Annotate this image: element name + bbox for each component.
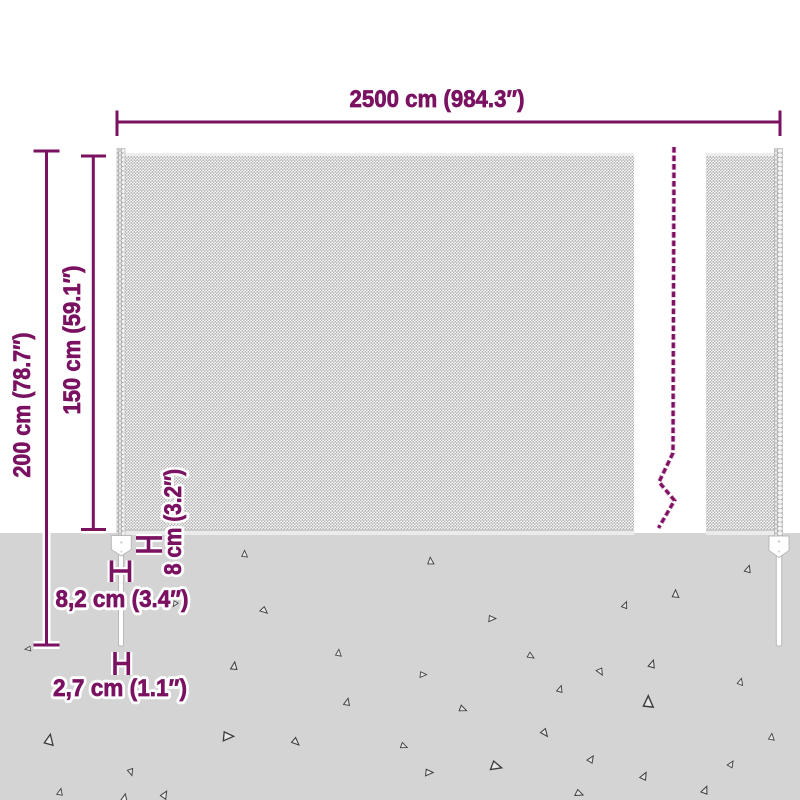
svg-text:8 cm (3.2″): 8 cm (3.2″): [160, 469, 187, 575]
svg-text:150 cm (59.1″): 150 cm (59.1″): [59, 266, 86, 415]
svg-text:2,7 cm (1.1″): 2,7 cm (1.1″): [53, 675, 187, 702]
svg-text:200 cm (78.7″): 200 cm (78.7″): [9, 333, 36, 478]
svg-text:2500 cm (984.3″): 2500 cm (984.3″): [350, 86, 525, 113]
svg-text:8,2 cm (3.4″): 8,2 cm (3.4″): [56, 586, 189, 613]
